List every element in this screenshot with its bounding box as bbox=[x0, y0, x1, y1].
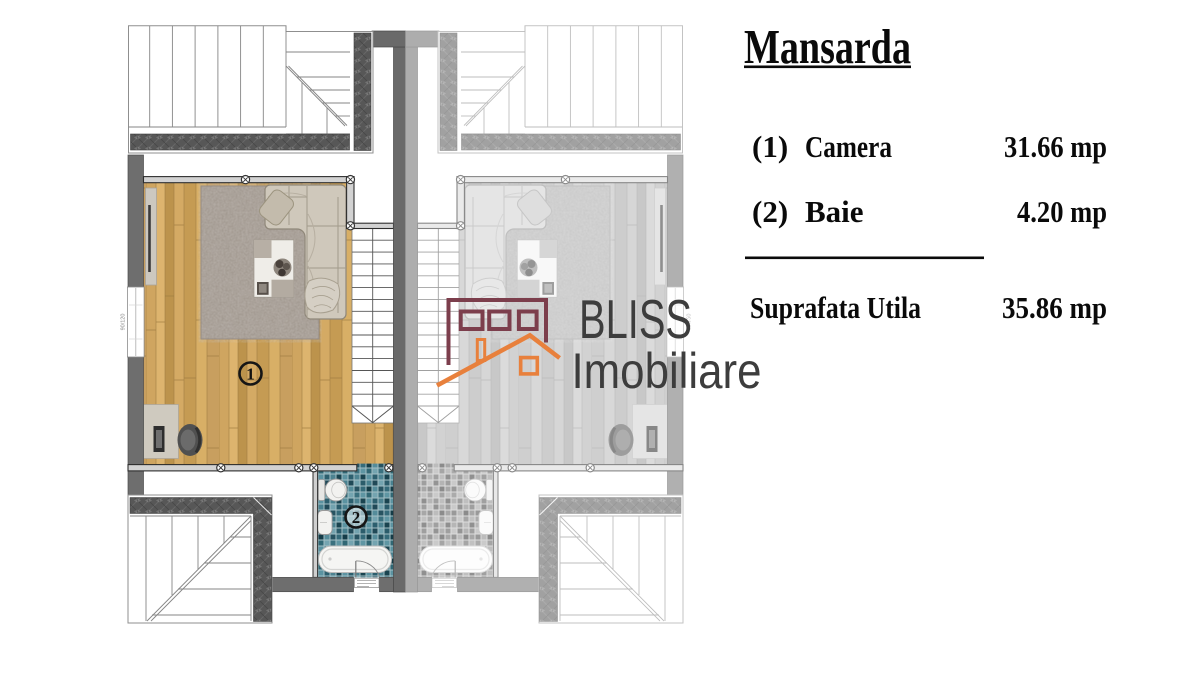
svg-text:1: 1 bbox=[246, 365, 255, 384]
svg-text:(1): (1) bbox=[752, 129, 788, 164]
svg-text:4.20 mp: 4.20 mp bbox=[1017, 194, 1107, 229]
svg-text:35.86 mp: 35.86 mp bbox=[1002, 290, 1107, 325]
svg-text:2: 2 bbox=[352, 508, 361, 527]
svg-text:Suprafata Utila: Suprafata Utila bbox=[750, 290, 921, 325]
svg-text:31.66 mp: 31.66 mp bbox=[1004, 129, 1107, 164]
svg-text:(2): (2) bbox=[752, 194, 788, 229]
svg-text:90/120: 90/120 bbox=[121, 314, 127, 331]
svg-text:Imobiliare: Imobiliare bbox=[572, 343, 762, 399]
svg-text:BLISS: BLISS bbox=[579, 288, 692, 350]
svg-text:Camera: Camera bbox=[805, 129, 892, 164]
svg-text:Baie: Baie bbox=[805, 194, 864, 229]
